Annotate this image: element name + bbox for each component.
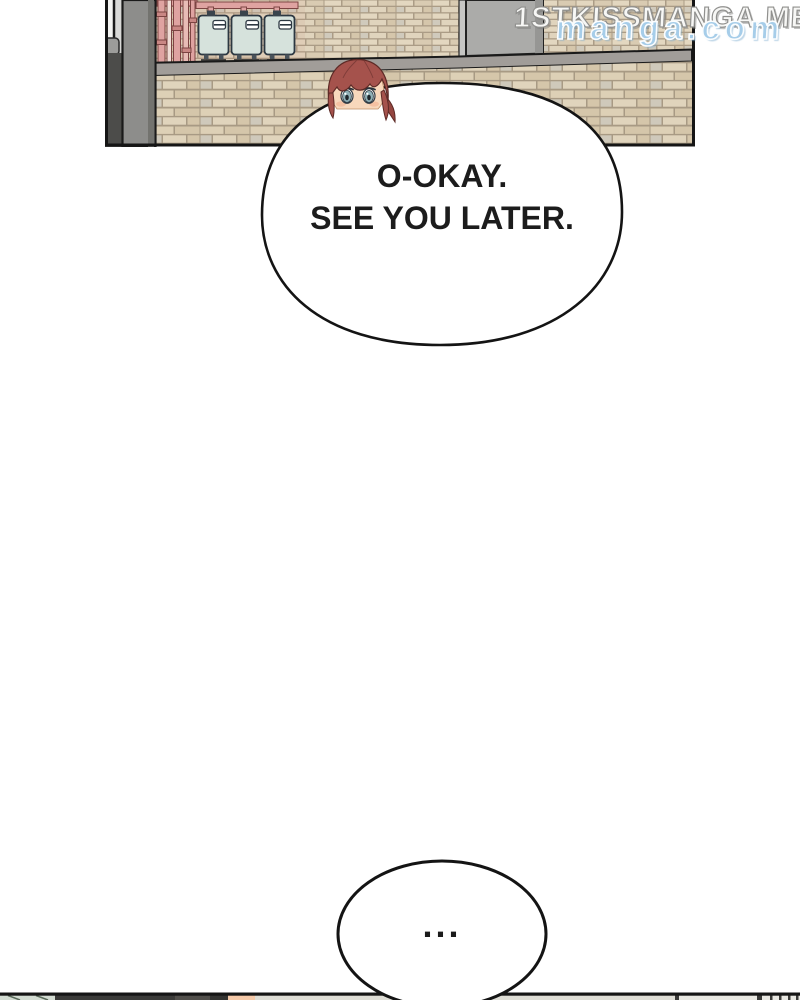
speech-bubble-2-text: ... <box>392 904 492 946</box>
speech-bubble-1-line-1: O-OKAY. <box>272 160 612 192</box>
speech-bubble-1-line-2: SEE YOU LATER. <box>272 202 612 234</box>
gas-meter <box>265 11 295 61</box>
site-watermark-secondary: manga.com <box>555 9 785 47</box>
gas-meters <box>199 11 295 61</box>
comic-artwork <box>0 0 800 1000</box>
pillar <box>123 0 156 147</box>
manga-page: O-OKAY. SEE YOU LATER. ... 1STKISSMANGA.… <box>0 0 800 1000</box>
gas-meter <box>232 11 262 61</box>
gas-meter <box>199 11 229 61</box>
gas-pipes <box>157 0 198 63</box>
